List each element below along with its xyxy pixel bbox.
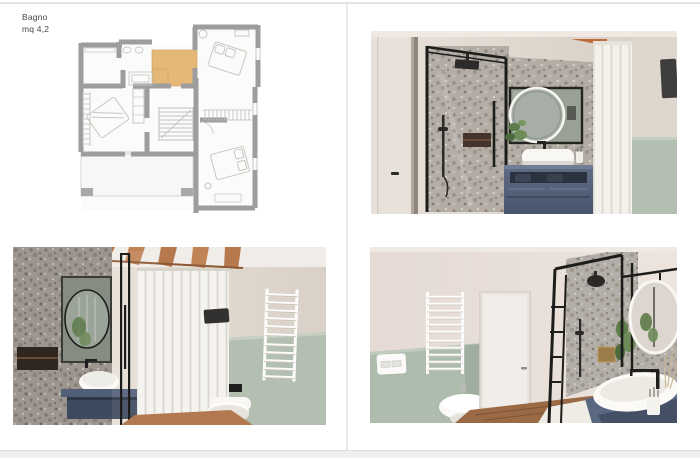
highlighted-bagno-room — [152, 50, 197, 86]
plan-caption: Bagno mq 4,2 — [22, 11, 49, 35]
bidet-tap — [461, 384, 466, 393]
document-spread: Bagno mq 4,2 — [0, 0, 700, 457]
ceiling-strip — [370, 247, 677, 252]
flush-plate — [376, 353, 406, 374]
floor-plan — [75, 18, 265, 223]
room-name-label: Bagno — [22, 11, 49, 23]
door-handle — [391, 172, 399, 175]
towel-radiator — [426, 292, 464, 374]
flush-fitting — [229, 384, 242, 392]
sage-wainscot — [632, 139, 677, 214]
right-wall — [632, 36, 677, 214]
white-curtain — [593, 41, 632, 214]
render-bidet-door-shower-basin-photo — [370, 247, 677, 423]
render-shower-mirror-vanity-photo — [371, 31, 677, 214]
wall-speaker — [204, 308, 230, 324]
shower-rail — [579, 319, 581, 377]
ceiling-strip — [371, 31, 677, 37]
shower-rail — [442, 115, 445, 177]
door-handle — [521, 367, 527, 370]
vanity — [504, 165, 593, 214]
partition-handle — [124, 305, 126, 369]
tumbler-cup — [576, 151, 583, 163]
door-left — [371, 31, 418, 214]
page-divider — [346, 3, 348, 450]
wall-speaker — [660, 59, 677, 99]
page-top-edge — [0, 2, 700, 4]
mirror-group — [62, 277, 111, 362]
render-vanity-curtain-toilet-photo — [13, 247, 326, 425]
brass-niche — [598, 347, 615, 362]
tumbler-cup — [647, 397, 660, 415]
door — [480, 292, 530, 410]
room-area-label: mq 4,2 — [22, 23, 49, 35]
